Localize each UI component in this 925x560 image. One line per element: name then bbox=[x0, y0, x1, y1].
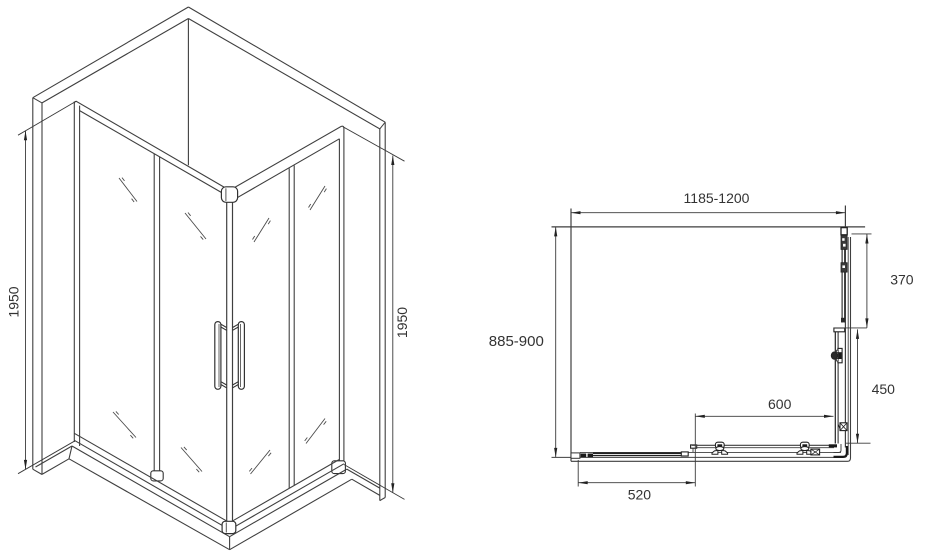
svg-text:1950: 1950 bbox=[394, 307, 410, 338]
svg-text:1185-1200: 1185-1200 bbox=[684, 190, 750, 206]
svg-text:520: 520 bbox=[628, 486, 652, 502]
svg-text:885-900: 885-900 bbox=[489, 333, 544, 350]
svg-text:370: 370 bbox=[890, 272, 914, 288]
svg-text:1950: 1950 bbox=[5, 286, 21, 317]
svg-text:600: 600 bbox=[768, 396, 792, 412]
svg-text:450: 450 bbox=[872, 381, 896, 397]
